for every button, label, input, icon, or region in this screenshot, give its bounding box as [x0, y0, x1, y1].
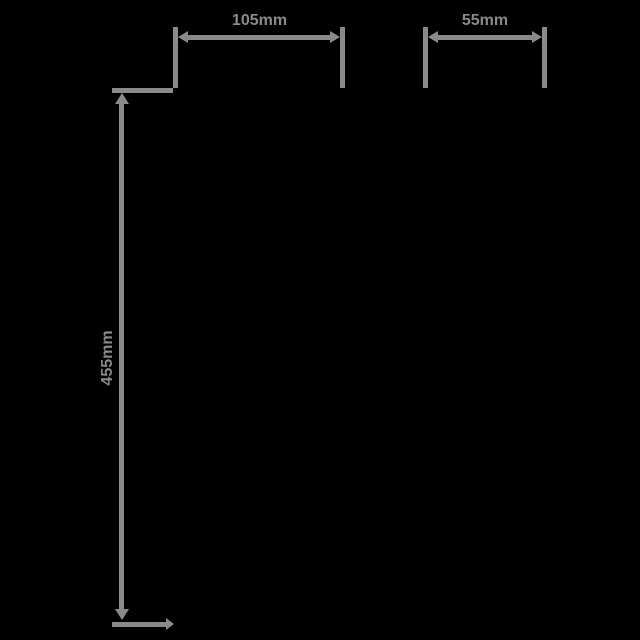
arrow-right-icon [166, 618, 174, 630]
dimension-diagram: 105mm 55mm 455mm [0, 0, 640, 640]
height-dimension-line [119, 102, 124, 611]
width-dimension-label: 105mm [176, 11, 343, 31]
arrow-down-icon [115, 609, 129, 620]
depth-extension-line-right [542, 27, 547, 88]
height-extension-line-bottom [112, 622, 170, 627]
depth-dimension-label: 55mm [423, 11, 547, 31]
depth-dimension-line [436, 35, 534, 40]
width-extension-line-right [340, 27, 345, 88]
width-dimension-line [186, 35, 334, 40]
height-dimension-label: 455mm [98, 318, 118, 398]
